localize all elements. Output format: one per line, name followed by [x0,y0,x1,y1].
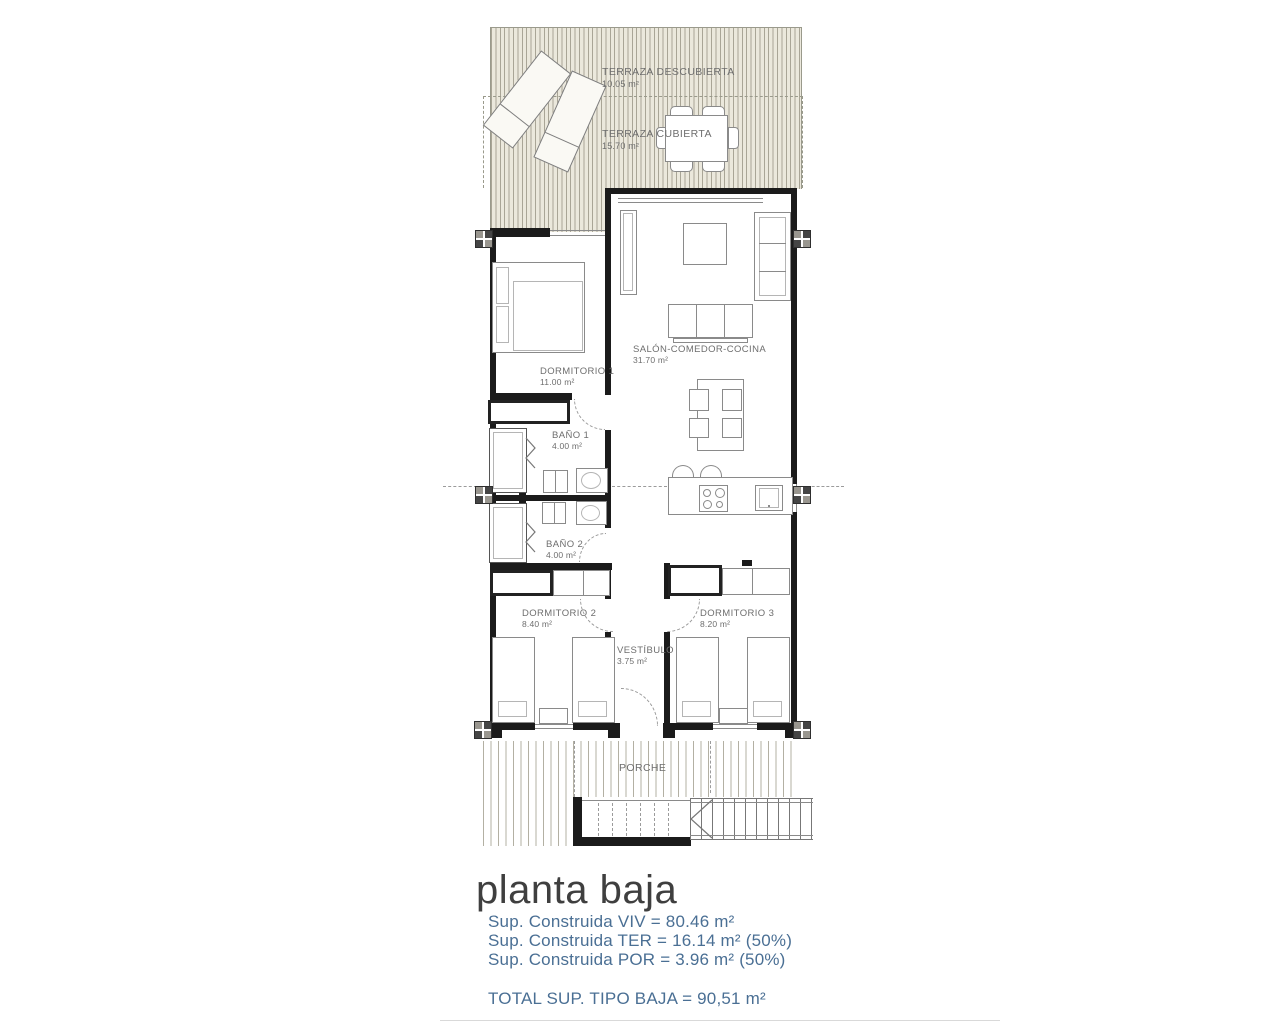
room-area: 8.40 m² [522,619,596,630]
bottom-rule [440,1020,1000,1021]
side-sofa-seat [759,217,786,296]
shower-door-zigzag [524,436,538,476]
stair-tread-dash [654,803,655,836]
label-bano-1: BAÑO 1 4.00 m² [552,430,589,452]
stair-break-chevron [688,798,714,840]
wardrobe [488,400,570,424]
porch-boundary-dash [574,741,575,797]
wall-segment [663,723,713,730]
bed-pillow [498,701,527,717]
column-marker [794,487,810,503]
wall-segment [490,228,550,237]
summary-line-viv: Sup. Construida VIV = 80.46 m² [488,912,735,932]
door-arc-dormitorio3 [667,599,700,632]
room-name: VESTÍBULO [617,645,674,656]
terrace-door [550,230,605,231]
summary-total: TOTAL SUP. TIPO BAJA = 90,51 m² [488,989,766,1009]
low-table [683,223,727,265]
stove-burner [703,500,712,509]
bar-stool [700,465,722,477]
door-arc-bano1 [574,399,605,430]
stair-wall [573,837,691,846]
wall-segment [490,723,535,730]
section-line [612,486,667,487]
label-vestibulo: VESTÍBULO 3.75 m² [617,645,674,667]
wall-segment [573,723,620,730]
bed-pillow [578,701,607,717]
toilet-tank-line [555,471,556,492]
dining-chair [689,389,709,411]
wardrobe-divider [752,569,753,594]
summary-line-por: Sup. Construida POR = 3.96 m² (50%) [488,950,786,970]
salon-sliding-door [618,198,763,199]
bedroom3-window [713,724,757,725]
room-area: 31.70 m² [633,355,766,366]
sofa [668,304,753,338]
nightstand [719,708,748,724]
terrace-hatch-left-strip [490,188,606,232]
summary-line-ter: Sup. Construida TER = 16.14 m² (50%) [488,931,792,951]
wardrobe-shelves [722,568,790,595]
sideboard-inner [623,213,633,291]
sofa-base [673,338,748,343]
terrace-door [550,235,605,236]
wall-segment [605,188,765,194]
stair-tread-dash [612,803,613,836]
column-marker [475,722,491,738]
bedroom2-window [535,724,573,725]
sink-basin [581,505,600,521]
porch-hatch [483,797,573,846]
sofa-cushion-line [759,271,786,272]
stair-tread-dash [668,803,669,836]
room-name: PORCHE [619,762,666,774]
section-line [443,486,477,487]
salon-sliding-door [618,202,763,203]
bed-pillow [753,701,782,717]
lounger-pillow-line [545,132,578,148]
dining-chair [722,418,742,438]
lounger-pillow-line [500,104,529,127]
label-dormitorio-1: DORMITORIO 1 11.00 m² [540,366,614,388]
label-bano-2: BAÑO 2 4.00 m² [546,539,583,561]
room-area: 10.05 m² [602,78,735,90]
dining-chair [689,418,709,438]
shower-door-zigzag [524,520,538,560]
wardrobe-shelves [553,570,610,596]
bedroom2-window [535,728,573,729]
sink-basin [581,472,601,489]
room-name: BAÑO 1 [552,430,589,441]
floor-plan-page: TERRAZA DESCUBIERTA 10.05 m² TERRAZA CUB… [0,0,1280,1024]
stove-burner [715,488,725,498]
sofa-cushion-line [724,305,725,337]
wall-segment [490,393,572,400]
label-terraza-descubierta: TERRAZA DESCUBIERTA 10.05 m² [602,66,735,90]
stair-tread-dash [598,803,599,836]
sofa-cushion-line [759,243,786,244]
room-name: TERRAZA DESCUBIERTA [602,66,735,78]
terrace-chair-side [728,127,739,149]
room-name: BAÑO 2 [546,539,583,550]
label-dormitorio-3: DORMITORIO 3 8.20 m² [700,608,774,630]
wall-jamb [608,730,620,738]
bed-mattress [513,281,583,351]
room-area: 4.00 m² [552,441,589,452]
label-salon: SALÓN-COMEDOR-COCINA 31.70 m² [633,344,766,366]
shower-tray [493,432,523,489]
label-terraza-cubierta: TERRAZA CUBIERTA 15.70 m² [602,128,712,152]
label-dormitorio-2: DORMITORIO 2 8.40 m² [522,608,596,630]
wardrobe-divider [583,571,584,595]
stair-tread-dash [640,803,641,836]
stair-tread-dash [626,803,627,836]
room-area: 15.70 m² [602,140,712,152]
bed-pillow [496,306,509,343]
wall-jamb [490,730,502,738]
wall-segment [605,194,611,395]
column-marker [476,487,492,503]
sofa-cushion-line [696,305,697,337]
bed-pillow [496,267,509,304]
room-area: 11.00 m² [540,377,614,388]
nightstand [539,708,568,724]
sink-drain [768,505,770,507]
column-marker [476,231,492,247]
wardrobe [490,570,553,596]
bar-stool [672,465,694,477]
column-marker [794,722,810,738]
stove-burner [703,489,711,497]
toilet-tank-line [554,503,555,523]
room-name: DORMITORIO 1 [540,366,614,377]
room-name: DORMITORIO 3 [700,608,774,619]
wall-jamb [663,730,675,738]
wall-segment [757,723,797,730]
porch-boundary-dash [710,741,711,793]
wardrobe [668,565,722,596]
shower-tray [493,507,523,559]
door-arc-entrance [621,688,658,726]
wall-segment [490,563,612,570]
room-name: TERRAZA CUBIERTA [602,128,712,140]
bedroom3-window [713,728,757,729]
dining-chair [722,389,742,411]
wall-segment [742,560,752,566]
room-name: SALÓN-COMEDOR-COCINA [633,344,766,355]
page-title: planta baja [476,868,677,913]
stair-landing [582,800,690,838]
room-area: 4.00 m² [546,550,583,561]
label-porche: PORCHE [619,762,666,774]
column-marker [794,231,810,247]
stove-burner [716,501,723,508]
room-area: 8.20 m² [700,619,774,630]
bed-pillow [682,701,711,717]
room-name: DORMITORIO 2 [522,608,596,619]
wall-segment [791,512,797,730]
wall-segment [763,188,793,194]
room-area: 3.75 m² [617,656,674,667]
